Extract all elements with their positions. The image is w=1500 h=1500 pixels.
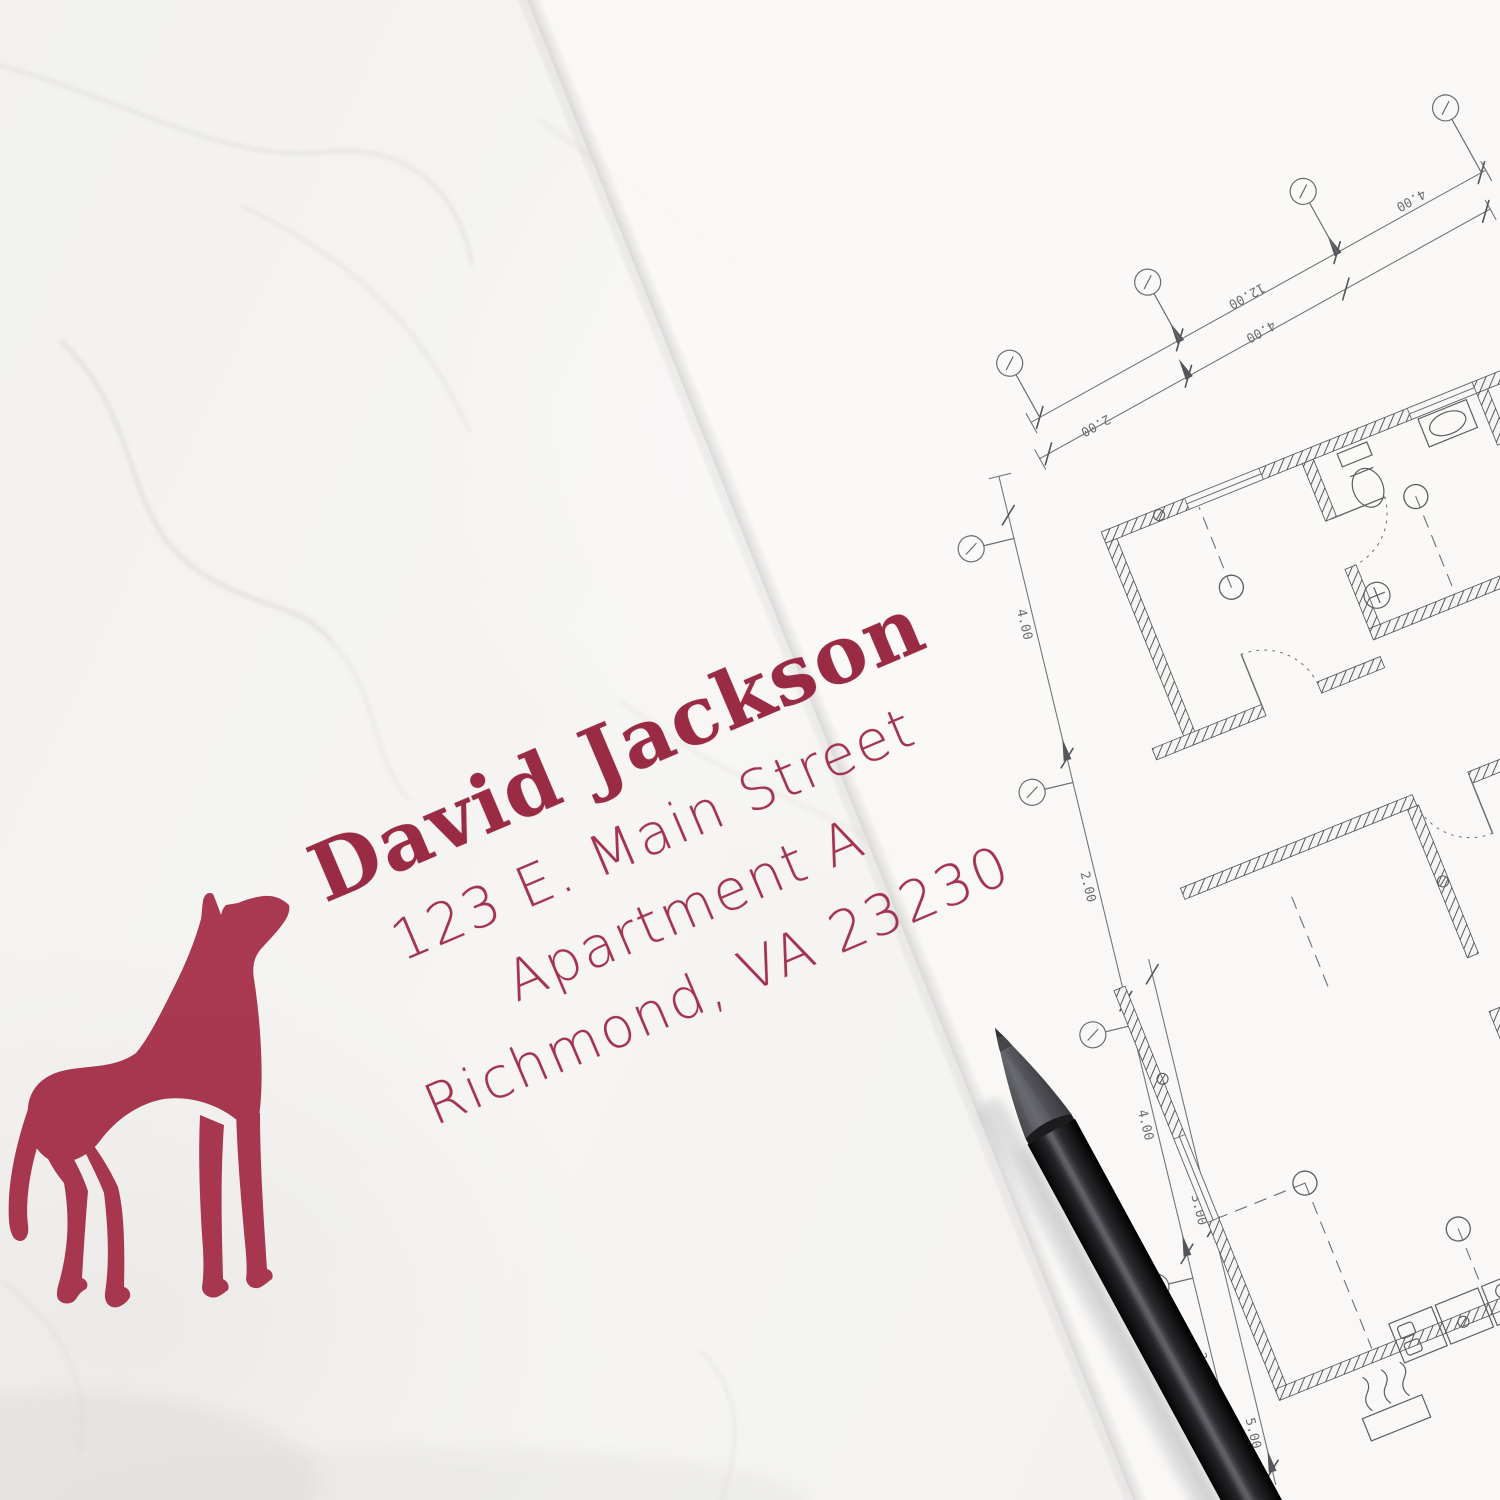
greyhound-dog-silhouette-icon — [2, 893, 302, 1313]
photo-canvas: { "scene": { "kind": "product photo", "s… — [0, 0, 1500, 1500]
soft-shadows — [0, 1392, 810, 1500]
dog-front-leg-rear — [199, 1115, 228, 1298]
dog-tail — [9, 1093, 46, 1241]
dog-front-leg-front — [236, 1109, 273, 1288]
